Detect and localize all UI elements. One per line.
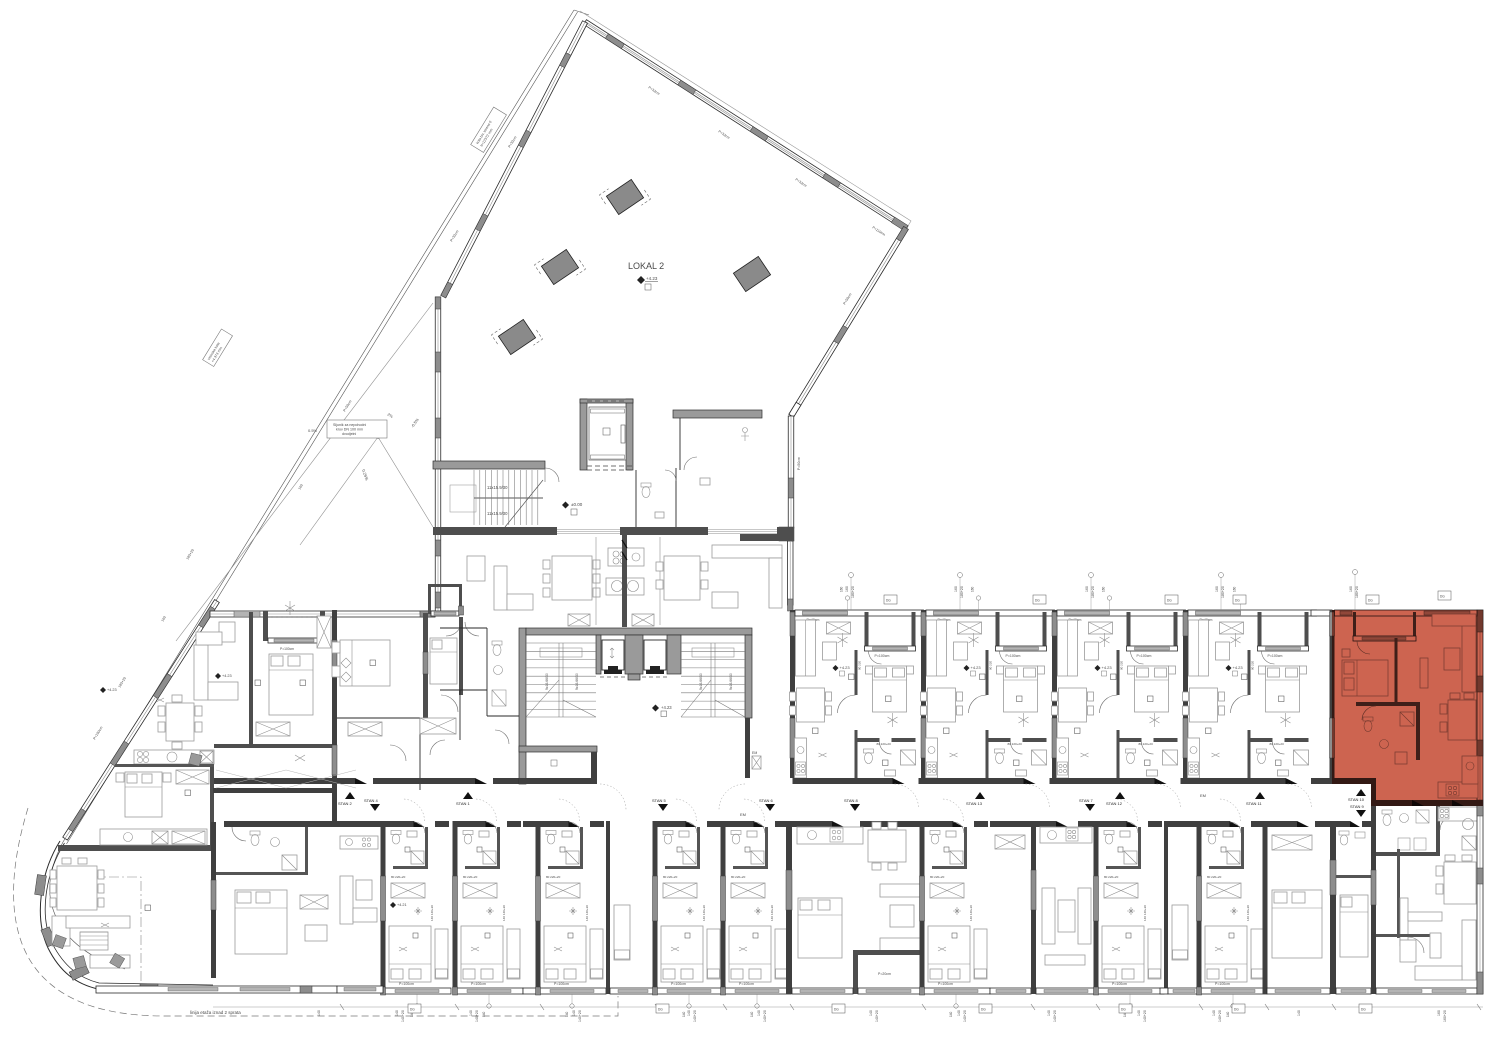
svg-text:9x16.66/30: 9x16.66/30 [729, 673, 733, 690]
svg-text:+4.21: +4.21 [397, 903, 407, 907]
svg-text:EM: EM [740, 812, 746, 817]
svg-text:140+20: 140+20 [1143, 1010, 1147, 1022]
svg-text:+4.23: +4.23 [646, 276, 658, 281]
svg-text:140+20: 140+20 [693, 1010, 697, 1022]
svg-text:dvodjelni: dvodjelni [342, 432, 356, 436]
svg-text:140+20: 140+20 [1053, 1010, 1057, 1022]
svg-text:140: 140 [1297, 1010, 1301, 1016]
svg-text:140: 140 [957, 1010, 961, 1016]
svg-text:DG: DG [981, 1008, 986, 1012]
svg-text:STAN 2: STAN 2 [338, 801, 352, 806]
svg-text:160: 160 [1349, 586, 1353, 592]
svg-text:STAN 4: STAN 4 [364, 798, 378, 803]
svg-text:+4.23: +4.23 [107, 688, 117, 692]
svg-text:DG: DG [1368, 599, 1373, 603]
svg-text:P=100cm: P=100cm [280, 647, 294, 651]
svg-text:140: 140 [1047, 1010, 1051, 1016]
svg-text:140+20: 140+20 [401, 1010, 405, 1022]
svg-text:140: 140 [317, 1010, 321, 1016]
svg-text:STAN 7: STAN 7 [1079, 798, 1093, 803]
svg-text:krov DN 100 mm: krov DN 100 mm [336, 428, 363, 432]
svg-text:140: 140 [469, 1010, 473, 1016]
svg-text:±0.00: ±0.00 [571, 502, 583, 507]
svg-text:DG: DG [1121, 1008, 1126, 1012]
svg-text:140: 140 [572, 1010, 576, 1016]
svg-text:STAN 6: STAN 6 [759, 798, 773, 803]
svg-text:DG: DG [1234, 1008, 1239, 1012]
svg-text:Sljunik za nepohodni: Sljunik za nepohodni [333, 423, 366, 427]
svg-text:+4.23: +4.23 [661, 705, 672, 710]
svg-text:180+20: 180+20 [1355, 586, 1359, 598]
svg-text:140: 140 [687, 1010, 691, 1016]
svg-text:EM: EM [752, 751, 757, 755]
svg-text:DG: DG [1235, 599, 1240, 603]
svg-text:STAN 11: STAN 11 [1246, 801, 1262, 806]
svg-text:160: 160 [1437, 1010, 1441, 1016]
svg-text:+4.23: +4.23 [222, 674, 232, 678]
svg-text:STAN 1: STAN 1 [456, 801, 470, 806]
svg-text:140+20: 140+20 [1218, 1010, 1222, 1022]
svg-text:9x16.66/30: 9x16.66/30 [575, 673, 579, 690]
svg-text:DG: DG [1361, 1008, 1366, 1012]
svg-text:STAN 10: STAN 10 [1348, 797, 1365, 802]
svg-text:140+20: 140+20 [763, 1010, 767, 1022]
svg-text:DG: DG [410, 1008, 415, 1012]
svg-text:140: 140 [869, 1010, 873, 1016]
svg-text:160: 160 [954, 586, 958, 592]
svg-text:140+20: 140+20 [875, 1010, 879, 1022]
svg-text:STAN 8: STAN 8 [844, 798, 858, 803]
svg-text:DG: DG [658, 1008, 663, 1012]
svg-text:STAN 9: STAN 9 [1350, 804, 1364, 809]
svg-text:180+20: 180+20 [1091, 586, 1095, 598]
svg-text:DG: DG [1440, 595, 1445, 599]
svg-text:DG: DG [834, 1008, 839, 1012]
svg-text:160: 160 [1215, 586, 1219, 592]
svg-text:9x16.66/30: 9x16.66/30 [699, 673, 703, 690]
svg-text:140: 140 [1212, 1010, 1216, 1016]
svg-text:9x16.66/30: 9x16.66/30 [545, 673, 549, 690]
svg-text:140+20: 140+20 [963, 1010, 967, 1022]
svg-text:LOKAL 2: LOKAL 2 [628, 261, 664, 271]
svg-text:DG: DG [1035, 599, 1040, 603]
svg-text:DG: DG [886, 599, 891, 603]
svg-text:linija etaža iznad 2 sprata: linija etaža iznad 2 sprata [190, 1010, 241, 1015]
svg-text:140: 140 [757, 1010, 761, 1016]
svg-text:0.5%: 0.5% [308, 428, 318, 433]
svg-text:STAN 5: STAN 5 [652, 798, 666, 803]
svg-text:P=20cm: P=20cm [878, 972, 891, 976]
svg-text:STAN 12: STAN 12 [1106, 801, 1123, 806]
svg-text:160: 160 [845, 586, 849, 592]
svg-text:140: 140 [1137, 1010, 1141, 1016]
svg-text:11x15.9/30: 11x15.9/30 [487, 511, 508, 516]
svg-text:140+20: 140+20 [578, 1010, 582, 1022]
svg-text:11x15.9/30: 11x15.9/30 [487, 485, 508, 490]
svg-text:160+20: 160+20 [1443, 1010, 1447, 1022]
svg-text:EM: EM [1200, 793, 1206, 798]
svg-text:180+20: 180+20 [1221, 586, 1225, 598]
svg-text:DG: DG [1167, 599, 1172, 603]
svg-text:140: 140 [395, 1010, 399, 1016]
svg-text:160: 160 [1085, 586, 1089, 592]
svg-text:P=50cm: P=50cm [797, 457, 801, 470]
svg-text:140+20: 140+20 [475, 1010, 479, 1022]
svg-text:STAN 13: STAN 13 [966, 801, 983, 806]
svg-text:180+20: 180+20 [851, 586, 855, 598]
svg-text:180+20: 180+20 [960, 586, 964, 598]
